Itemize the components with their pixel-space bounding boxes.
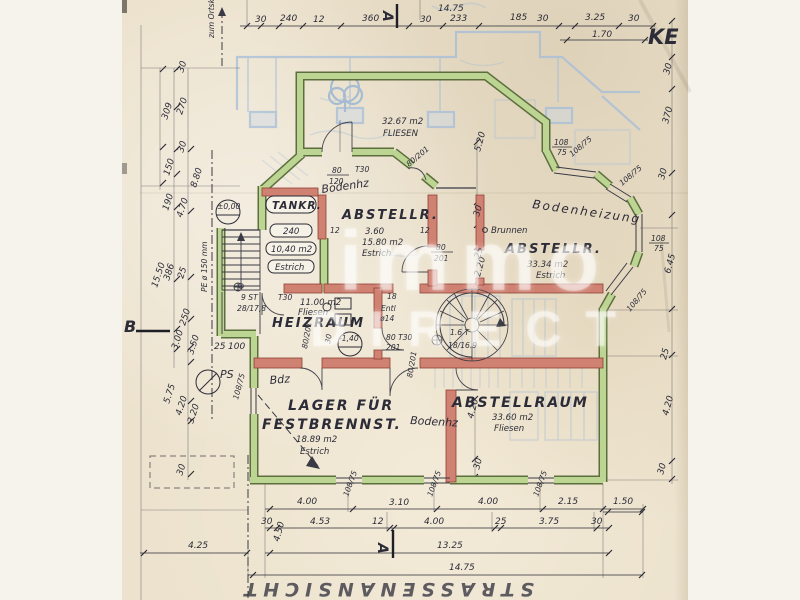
dim-b2-1: 4.53 <box>310 517 330 527</box>
dim-b2-4: 25 <box>495 517 507 527</box>
vent-label: Entl <box>381 304 397 313</box>
room-lager-name2: FESTBRENNST. <box>262 417 402 433</box>
dim-b1-2: 4.00 <box>478 497 498 507</box>
dim-left-16: 5.75 <box>162 383 178 405</box>
door-80-120-den: 120 <box>329 177 344 186</box>
dim-b2-0: 30 <box>261 517 273 527</box>
door-80t30-label: 80 T30 <box>386 333 413 342</box>
level-minus-label: -1,40 <box>339 334 359 343</box>
room-ab3-finish: Fliesen <box>494 424 524 434</box>
spiral-staircase <box>432 289 508 361</box>
dim-b2-6: 30 <box>591 517 603 527</box>
dim-left-1: 309 <box>160 101 175 121</box>
street-view-label: STRASSENANSICHT <box>238 578 534 600</box>
room-lager-finish: Estrich <box>300 447 329 457</box>
door-t30-label: T30 <box>278 293 292 302</box>
dim-left-14: 25 <box>214 342 226 352</box>
dim-left-12: 3.00 <box>170 329 186 351</box>
dim-left-7: 4.70 <box>175 197 191 219</box>
dim-top-2: 12 <box>313 15 325 25</box>
section-b-marker: B <box>124 317 136 336</box>
room-heiz-area: 11.00 m2 <box>300 298 341 308</box>
dim-right-6: 30 <box>656 462 669 476</box>
door-80-201-den: 201 <box>434 254 449 263</box>
window-size-den: 75 <box>557 148 567 157</box>
dim-top-4: 30 <box>420 15 432 25</box>
vent-dia-label: ø14 <box>379 314 394 323</box>
dim-right-5: 4.20 <box>661 395 676 417</box>
direction-label: zum Ortskern <box>207 0 216 39</box>
room-ab1-area: 15.80 m2 <box>362 238 403 248</box>
dim-left-0: 30 <box>176 60 189 74</box>
room-ab1-width: 3.60 <box>365 227 385 237</box>
dim-left-5: 8.80 <box>189 167 205 189</box>
window-size-label: 108/75 <box>531 469 549 497</box>
dim-left-18: 3.20 <box>186 403 202 425</box>
scanned-basement-floorplan: 30 240 12 360 30 233 185 30 3.25 30 1.70… <box>0 0 800 600</box>
spiral-stair-label1: 1.6 T <box>450 328 470 337</box>
dim-b2-5: 3.75 <box>539 517 559 527</box>
wall-18-label: 18 <box>387 292 397 301</box>
room-ab2-finish: Estrich <box>536 271 565 281</box>
dim-b2-2: 12 <box>372 517 384 527</box>
room-tank-name: TANKR. <box>272 200 322 212</box>
room-ab3-name: ABSTELLRAUM <box>451 395 589 411</box>
section-a-bottom: A <box>374 542 390 554</box>
room-top-area: 32.67 m2 <box>382 117 423 127</box>
stair-count-label: 9 ST <box>241 293 259 302</box>
window-size-label: 108/75 <box>625 287 649 313</box>
floor-heating-red-short: Bdz <box>269 372 291 387</box>
dim-top-7: 30 <box>537 14 549 24</box>
dim-b-total2: 14.75 <box>449 563 475 573</box>
room-heiz-name: HEIZRAUM <box>272 316 365 331</box>
room-lager-name1: LAGER FÜR <box>288 396 394 414</box>
dim-top-1: 240 <box>280 14 297 24</box>
dim-inner-5: 30 <box>472 457 485 471</box>
stair-step-label: 28/17,8 <box>237 304 266 313</box>
dim-right-4: 25 <box>659 347 672 361</box>
room-ab2-area: 33.34 m2 <box>527 260 568 270</box>
window-size-num: 108 <box>554 138 569 147</box>
dim-top-0: 30 <box>255 15 267 25</box>
door-201-label: 201 <box>386 343 401 352</box>
dim-right-2: 30 <box>657 167 670 181</box>
wall-12-label: 12 <box>420 226 430 235</box>
pipe-label: PE ø 150 mm <box>200 241 209 292</box>
dim-top-3: 360 <box>362 14 379 24</box>
door-size-label: 80/201 <box>405 350 419 378</box>
dim-left-15: 100 <box>228 342 245 352</box>
dim-b1-4: 1.50 <box>613 497 633 507</box>
window-size-den: 75 <box>654 244 664 253</box>
straight-staircase <box>222 230 260 334</box>
dim-left-total: 4.25 <box>188 541 208 551</box>
dim-top-8: 3.25 <box>585 13 605 23</box>
room-ab1-finish: Estrich <box>362 249 391 259</box>
door-size-label: 80/201 <box>405 144 431 168</box>
wall-30-label: 30 <box>323 333 334 344</box>
dim-b-total1: 13.25 <box>437 541 463 551</box>
dim-left-11: 250 <box>178 307 193 327</box>
room-ab2-name: ABSTELLR. <box>504 242 602 257</box>
dim-left-19: 30 <box>175 463 188 477</box>
dim-right-1: 370 <box>661 105 675 124</box>
window-size-label: 108/75 <box>568 134 594 158</box>
dim-left-3: 30 <box>176 140 189 154</box>
door-t30-label: T30 <box>355 165 369 174</box>
dim-inner-3: 2.20 <box>473 256 488 278</box>
dim-top-sub: 1.70 <box>592 30 612 40</box>
dim-left-10: 25 <box>176 266 189 280</box>
dim-right-3: 6.45 <box>663 253 678 275</box>
dim-b2-3: 4.00 <box>424 517 444 527</box>
window-size-label: 108/75 <box>341 469 359 497</box>
floor-heating-red-bottom: Bodenhz <box>410 414 459 429</box>
dim-top-5: 233 <box>450 14 467 24</box>
dim-b1-1: 3.10 <box>389 498 409 508</box>
window-size-label: 108/75 <box>618 163 644 187</box>
window-size-num: 108 <box>651 234 666 243</box>
dim-left-4: 150 <box>162 157 177 177</box>
dim-top-9: 30 <box>628 14 640 24</box>
room-tank-area: 10,40 m2 <box>271 245 312 255</box>
dim-inner-6: 4.50 <box>272 521 287 543</box>
corner-text: KE <box>648 25 679 49</box>
door-80-120-num: 80 <box>332 166 342 175</box>
room-ab3-area: 33.60 m2 <box>492 413 533 423</box>
dim-top-6: 185 <box>510 13 527 23</box>
dim-b1-0: 4.00 <box>297 497 317 507</box>
room-lager-area: 18.89 m2 <box>296 435 337 445</box>
door-80-201-num: 80 <box>436 243 446 252</box>
spiral-stair-label2: 18/16.9 <box>448 341 477 350</box>
window-size-label: 108/75 <box>425 469 443 497</box>
dim-top-total: 14.75 <box>438 4 464 14</box>
scan-edge-marks <box>122 0 127 174</box>
room-ab1-name: ABSTELLR. <box>341 208 439 223</box>
room-top-finish: FLIESEN <box>383 129 419 139</box>
wall-12-label: 12 <box>330 226 340 235</box>
dim-inner-0: 5.20 <box>473 131 488 153</box>
section-a-top: A <box>379 10 395 22</box>
dim-b1-3: 2.15 <box>558 497 578 507</box>
room-heiz-finish: Fliesen <box>298 308 328 318</box>
room-tank-width: 240 <box>283 227 300 237</box>
room-tank-finish: Estrich <box>275 263 304 273</box>
dim-left-13: 3.50 <box>186 334 202 356</box>
well-label: Brunnen <box>491 226 528 236</box>
level-zero-label: ±0,00 <box>217 202 240 211</box>
pump-sump-label: PS <box>220 368 234 381</box>
